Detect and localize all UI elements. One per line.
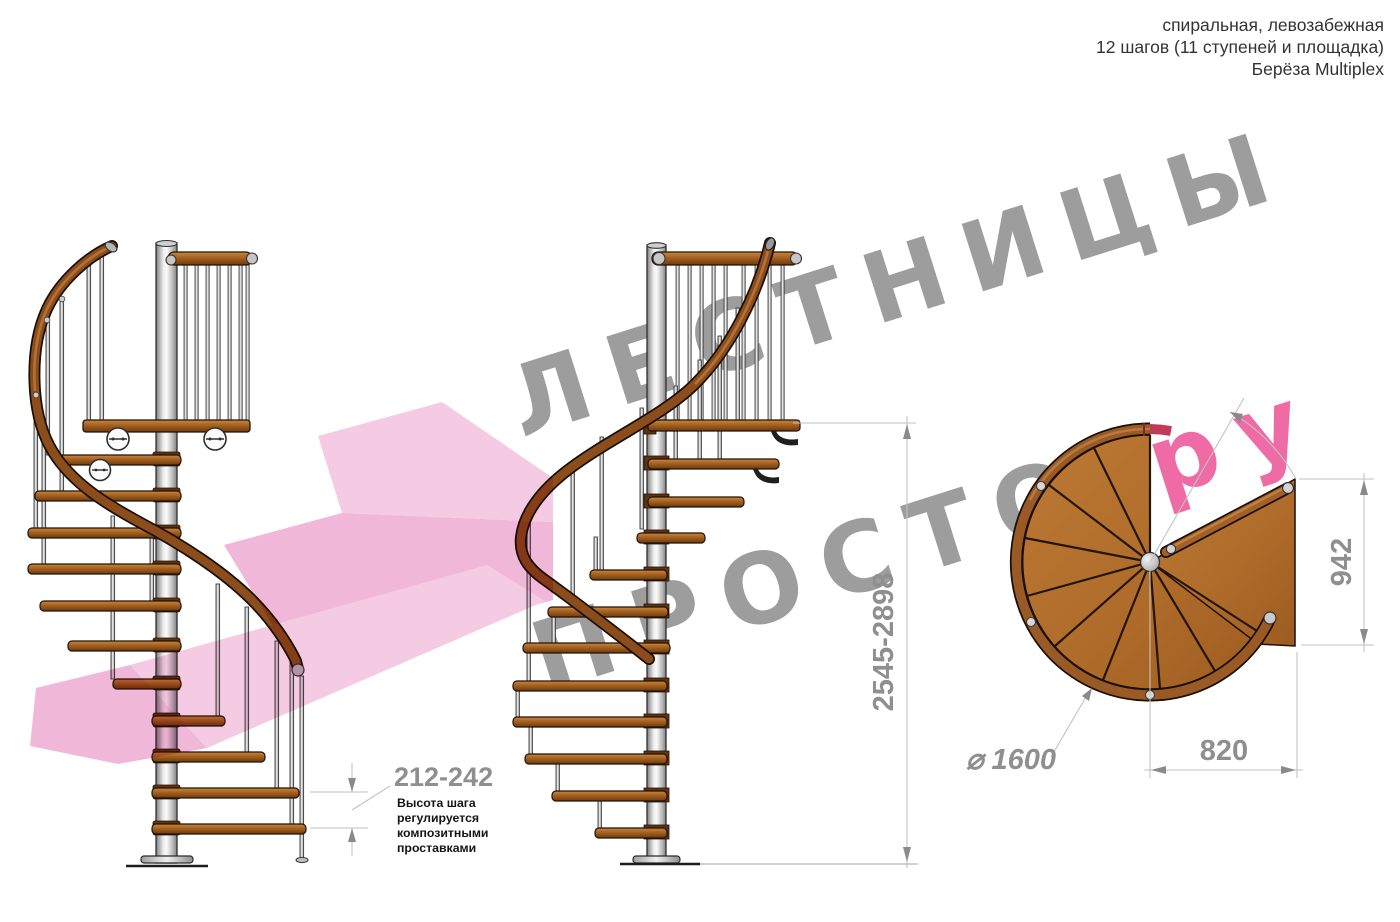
title-line-steps: 12 шагов (11 ступеней и площадка) xyxy=(1096,36,1384,58)
drawing-canvas: ЛЕСТНИЦЫ ПРОСТО.ру xyxy=(0,0,1400,922)
title-block: спиральная, левозабежная 12 шагов (11 ст… xyxy=(1096,14,1384,80)
title-line-type: спиральная, левозабежная xyxy=(1096,14,1384,36)
title-line-material: Берёза Multiplex xyxy=(1096,58,1384,80)
pink-arrow-watermark xyxy=(0,0,1400,922)
